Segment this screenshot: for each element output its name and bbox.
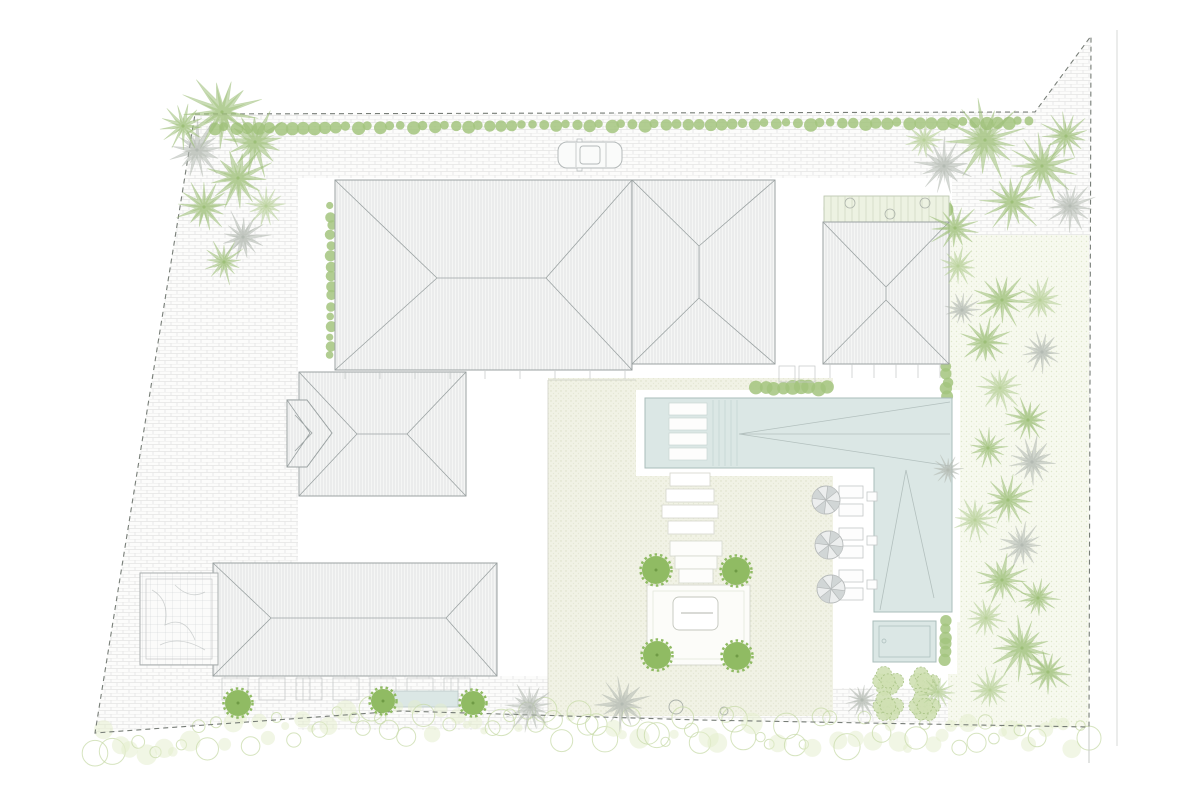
hedge-dot <box>870 118 881 129</box>
hedge-dot <box>683 119 694 130</box>
hedge-dot <box>1024 116 1033 125</box>
veg-sketch <box>756 732 765 741</box>
veg-sketch <box>480 727 487 734</box>
hedge-dot <box>385 121 394 130</box>
hedge-dot <box>738 119 747 128</box>
hedge-dot <box>782 118 790 126</box>
hedge-dot <box>326 334 333 341</box>
hedge-dot <box>407 121 420 134</box>
pergola-trellis <box>824 196 949 223</box>
fountain-step <box>679 569 713 583</box>
hedge-dot <box>325 230 335 240</box>
hedge-dot <box>484 121 495 132</box>
veg-sketch <box>218 738 231 751</box>
hedge-dot <box>749 119 761 131</box>
hedge-dot <box>1003 117 1016 130</box>
veg-sketch <box>180 731 201 752</box>
hedge-dot <box>396 121 405 130</box>
side-table <box>867 536 877 545</box>
side-table <box>867 580 877 589</box>
hedge-dot <box>958 117 967 126</box>
veg-sketch <box>168 747 178 757</box>
hedge-dot <box>326 202 333 209</box>
main-house-roof <box>335 180 632 370</box>
hedge-dot <box>418 121 427 130</box>
hedge-dot <box>627 119 637 129</box>
veg-sketch <box>121 741 138 758</box>
veg-sketch <box>261 731 275 745</box>
hedge-dot <box>716 119 728 131</box>
hedge-dot <box>650 119 659 128</box>
veg-sketch <box>450 708 466 724</box>
sun-lounger <box>839 504 863 516</box>
west-wing-roof <box>287 372 466 496</box>
veg-sketch <box>434 703 448 717</box>
hedge-dot <box>561 120 569 128</box>
veg-sketch <box>424 726 440 742</box>
hedge-dot <box>771 118 782 129</box>
hedge-dot <box>326 313 334 321</box>
side-table <box>867 492 877 501</box>
hedge-dot <box>727 119 738 130</box>
sun-lounger <box>839 486 863 498</box>
veg-sketch <box>196 738 218 760</box>
hedge-dot <box>539 120 549 130</box>
hedge-dot <box>705 119 717 131</box>
hedge-dot <box>584 120 596 132</box>
car-mirror <box>577 168 582 171</box>
parasol-icon <box>812 486 840 514</box>
hedge-dot <box>495 120 506 131</box>
veg-sketch <box>905 727 927 749</box>
veg-sketch <box>1001 720 1021 740</box>
hedge-dot <box>326 302 336 312</box>
veg-sketch <box>294 711 310 727</box>
hedge-dot <box>881 118 893 130</box>
hedge-dot <box>826 118 835 127</box>
site-plan-svg <box>0 0 1201 800</box>
veg-sketch <box>952 740 967 755</box>
hedge-dot <box>528 120 537 129</box>
veg-sketch <box>397 727 416 746</box>
veg-sketch <box>137 744 158 765</box>
hedge-dot <box>363 121 372 130</box>
round-tree-icon <box>224 689 253 718</box>
hedge-dot <box>939 654 951 666</box>
hedge-dot <box>821 380 834 393</box>
veg-sketch <box>661 737 670 746</box>
hedge-dot <box>429 121 441 133</box>
south-wing-roof <box>213 563 497 676</box>
veg-sketch <box>618 730 627 739</box>
veg-sketch <box>784 734 805 755</box>
hedge-dot <box>506 120 517 131</box>
hedge-dot <box>572 120 582 130</box>
site-plan-canvas <box>0 0 1201 800</box>
hedge-dot <box>341 121 350 130</box>
fountain-step <box>670 541 722 556</box>
veg-sketch <box>741 713 763 735</box>
parked-car <box>558 139 622 171</box>
veg-sketch <box>335 700 356 721</box>
car-mirror <box>577 139 582 142</box>
hedge-dot <box>672 119 682 129</box>
veg-sketch <box>287 733 301 747</box>
garden-trellis <box>140 573 218 665</box>
veg-sketch <box>629 728 649 748</box>
veg-sketch <box>945 720 957 732</box>
hedge-dot <box>325 250 336 261</box>
hedge-dot <box>517 120 526 129</box>
hedge-dot <box>616 119 625 128</box>
hedge-dot <box>462 121 475 134</box>
veg-sketch <box>707 733 727 753</box>
veg-sketch <box>281 722 289 730</box>
hedge-dot <box>760 118 769 127</box>
spa-pool <box>873 621 936 662</box>
hedge-dot <box>330 122 342 134</box>
hedge-dot <box>837 118 848 129</box>
sun-lounger <box>839 570 863 582</box>
hedge-dot <box>473 120 483 130</box>
hedge-dot <box>594 120 602 128</box>
hedge-dot <box>639 119 652 132</box>
hedge-dot <box>694 119 705 130</box>
veg-sketch <box>685 723 699 737</box>
hedge-dot <box>374 121 387 134</box>
hedge-dot <box>925 117 937 129</box>
parasol-icon <box>817 575 845 603</box>
veg-sketch <box>670 730 679 739</box>
main-house-east-wing-roof <box>632 180 775 364</box>
veg-sketch <box>959 714 977 732</box>
hedge-dot <box>815 118 824 127</box>
hedge-dot <box>892 117 901 126</box>
hedge-dot <box>319 122 331 134</box>
hedge-dot <box>327 241 336 250</box>
veg-sketch <box>885 721 896 732</box>
hedge-dot <box>550 120 562 132</box>
hedge-dot <box>903 118 916 131</box>
veg-sketch <box>936 729 949 742</box>
veg-sketch <box>551 730 573 752</box>
hedge-dot <box>914 117 926 129</box>
hedge-dot <box>326 351 334 359</box>
veg-sketch <box>307 725 315 733</box>
veg-sketch <box>1057 718 1070 731</box>
hedge-dot <box>451 121 461 131</box>
hedge-dot <box>848 118 859 129</box>
veg-sketch <box>82 740 108 766</box>
veg-sketch <box>803 739 821 757</box>
veg-sketch <box>848 731 864 747</box>
hedge-dot <box>661 119 672 130</box>
hedge-dot <box>297 122 310 135</box>
veg-sketch <box>241 737 260 756</box>
hedge-dot <box>1013 116 1021 124</box>
hedge-dot <box>440 121 449 130</box>
hedge-dot <box>793 118 803 128</box>
veg-sketch <box>319 717 337 735</box>
parasol-icon <box>815 531 843 559</box>
veg-sketch <box>989 733 1000 744</box>
veg-sketch <box>967 733 986 752</box>
sun-lounger <box>839 528 863 540</box>
fountain-step <box>675 556 717 569</box>
pool-house-roof <box>823 222 949 364</box>
